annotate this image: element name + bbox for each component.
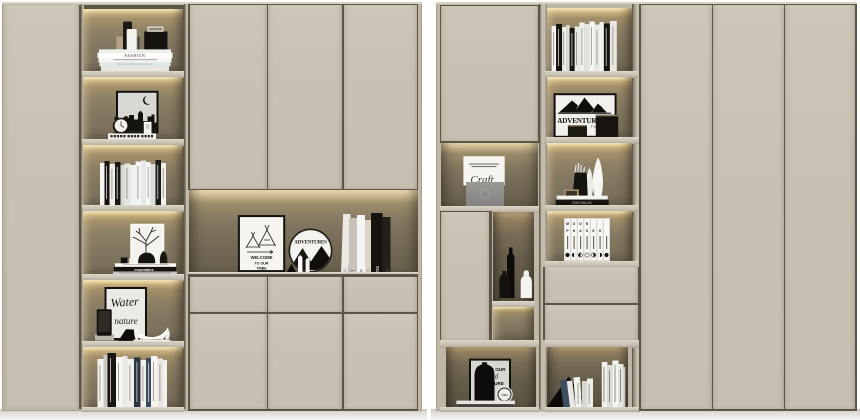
svg-text:O: O (573, 222, 576, 226)
svg-text:TO OUR: TO OUR (255, 262, 269, 266)
svg-text:FASHION: FASHION (124, 54, 145, 58)
svg-text:Water: Water (110, 294, 139, 310)
svg-text:nature: nature (114, 316, 137, 326)
svg-text:ADVENTURES: ADVENTURES (294, 241, 327, 246)
svg-text:mountains: mountains (134, 268, 153, 272)
svg-text:TRIBE: TRIBE (256, 267, 267, 271)
svg-text:O: O (579, 222, 582, 226)
svg-text:1982: 1982 (501, 393, 508, 397)
svg-text:M: M (566, 222, 569, 226)
svg-text:WELCOME: WELCOME (251, 255, 273, 260)
